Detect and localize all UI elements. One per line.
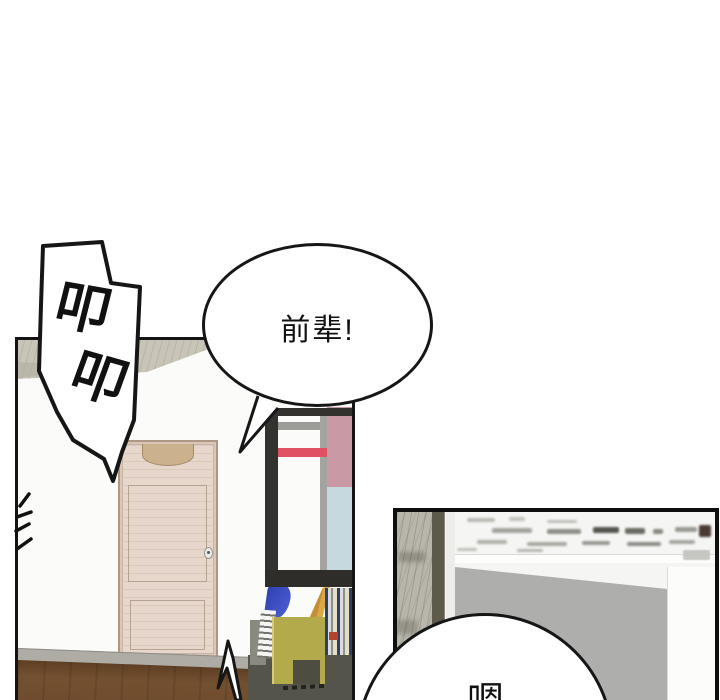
toolbar-smudge [582,541,610,545]
toolbar-smudge [517,549,543,552]
toolbar-smudge [457,548,477,551]
toolbar-smudge [527,542,567,546]
toolbar-smudge [509,517,525,521]
toolbar-smudge [625,528,645,534]
browser-page-margin [667,567,715,700]
comic-page: 嗯 叩 叩 前辈! [0,0,720,700]
toolbar-smudge [669,540,695,544]
toolbar-smudge [593,527,619,533]
browser-toolbar [455,512,715,555]
wall-smudge [399,552,425,562]
toolbar-bottom-band [455,555,715,563]
toolbar-smudge [547,529,581,534]
speech-bubble-reply-text: 嗯 [467,670,505,700]
toolbar-smudge [675,527,697,532]
toolbar-smudge [653,529,663,534]
toolbar-smudge [627,542,661,546]
wall-smudge [397,620,417,634]
toolbar-smudge [699,525,711,537]
speech-bubble-call-text: 前辈! [280,301,354,349]
scrollbar-blob [683,550,710,560]
toolbar-smudge [547,520,577,523]
speech-bubble-call: 前辈! [202,243,433,407]
toolbar-smudge [467,518,495,522]
toolbar-smudge [492,528,532,533]
toolbar-smudge [477,540,507,544]
motion-dash-marks [0,485,60,565]
